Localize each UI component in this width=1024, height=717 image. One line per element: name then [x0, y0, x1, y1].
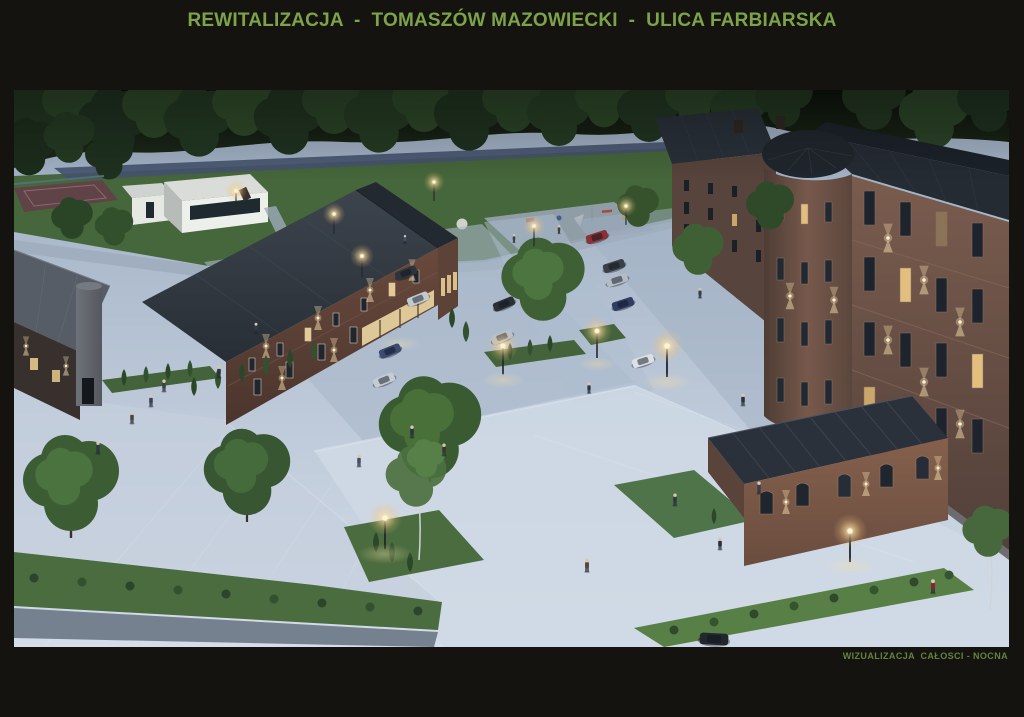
- image-caption: WIZUALIZACJA CAŁOSCI - NOCNA: [843, 651, 1008, 661]
- presentation-board: REWITALIZACJA - TOMASZÓW MAZOWIECKI - UL…: [0, 0, 1024, 717]
- visualization-image: [14, 90, 1009, 647]
- page-title: REWITALIZACJA - TOMASZÓW MAZOWIECKI - UL…: [0, 10, 1024, 32]
- night-render-scene: [14, 90, 1009, 647]
- top-vignette: [14, 90, 1009, 182]
